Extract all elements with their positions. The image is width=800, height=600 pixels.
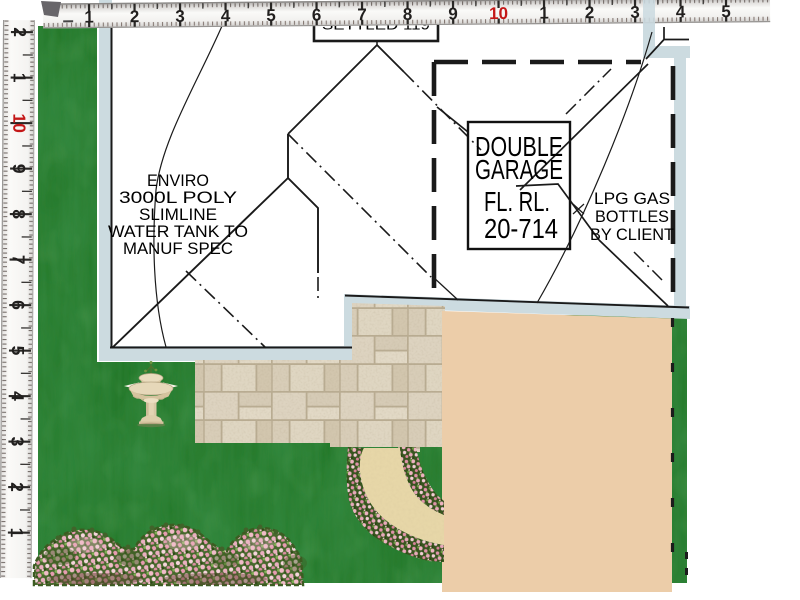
svg-text:MANUF SPEC: MANUF SPEC bbox=[123, 239, 233, 258]
svg-text:10: 10 bbox=[9, 113, 29, 133]
svg-text:BOTTLES: BOTTLES bbox=[595, 207, 669, 226]
svg-text:5: 5 bbox=[8, 346, 28, 356]
svg-text:7: 7 bbox=[357, 5, 367, 24]
svg-text:3: 3 bbox=[630, 3, 640, 22]
svg-text:1: 1 bbox=[7, 528, 27, 538]
svg-text:9: 9 bbox=[448, 4, 458, 23]
svg-text:GARAGE: GARAGE bbox=[475, 154, 563, 185]
svg-text:LPG GAS: LPG GAS bbox=[594, 189, 670, 208]
svg-text:2: 2 bbox=[130, 7, 140, 26]
svg-text:1: 1 bbox=[539, 4, 549, 23]
svg-text:5: 5 bbox=[266, 6, 276, 25]
svg-text:1: 1 bbox=[84, 8, 94, 27]
svg-text:20-714: 20-714 bbox=[484, 213, 558, 244]
svg-text:6: 6 bbox=[312, 6, 322, 25]
svg-text:4: 4 bbox=[8, 391, 28, 401]
svg-text:5: 5 bbox=[721, 2, 731, 21]
svg-text:2: 2 bbox=[585, 3, 595, 22]
svg-text:4: 4 bbox=[221, 6, 231, 25]
svg-text:8: 8 bbox=[403, 5, 413, 24]
svg-text:1: 1 bbox=[10, 73, 30, 83]
svg-text:9: 9 bbox=[9, 164, 29, 174]
svg-text:3: 3 bbox=[7, 437, 27, 447]
svg-text:7: 7 bbox=[9, 255, 29, 265]
svg-text:BY CLIENT: BY CLIENT bbox=[590, 225, 674, 244]
svg-text:6: 6 bbox=[8, 300, 28, 310]
svg-text:2: 2 bbox=[10, 27, 30, 37]
svg-text:2: 2 bbox=[7, 482, 27, 492]
svg-text:8: 8 bbox=[9, 209, 29, 219]
svg-text:3: 3 bbox=[175, 7, 185, 26]
svg-text:4: 4 bbox=[676, 2, 686, 21]
svg-text:10: 10 bbox=[489, 4, 508, 23]
